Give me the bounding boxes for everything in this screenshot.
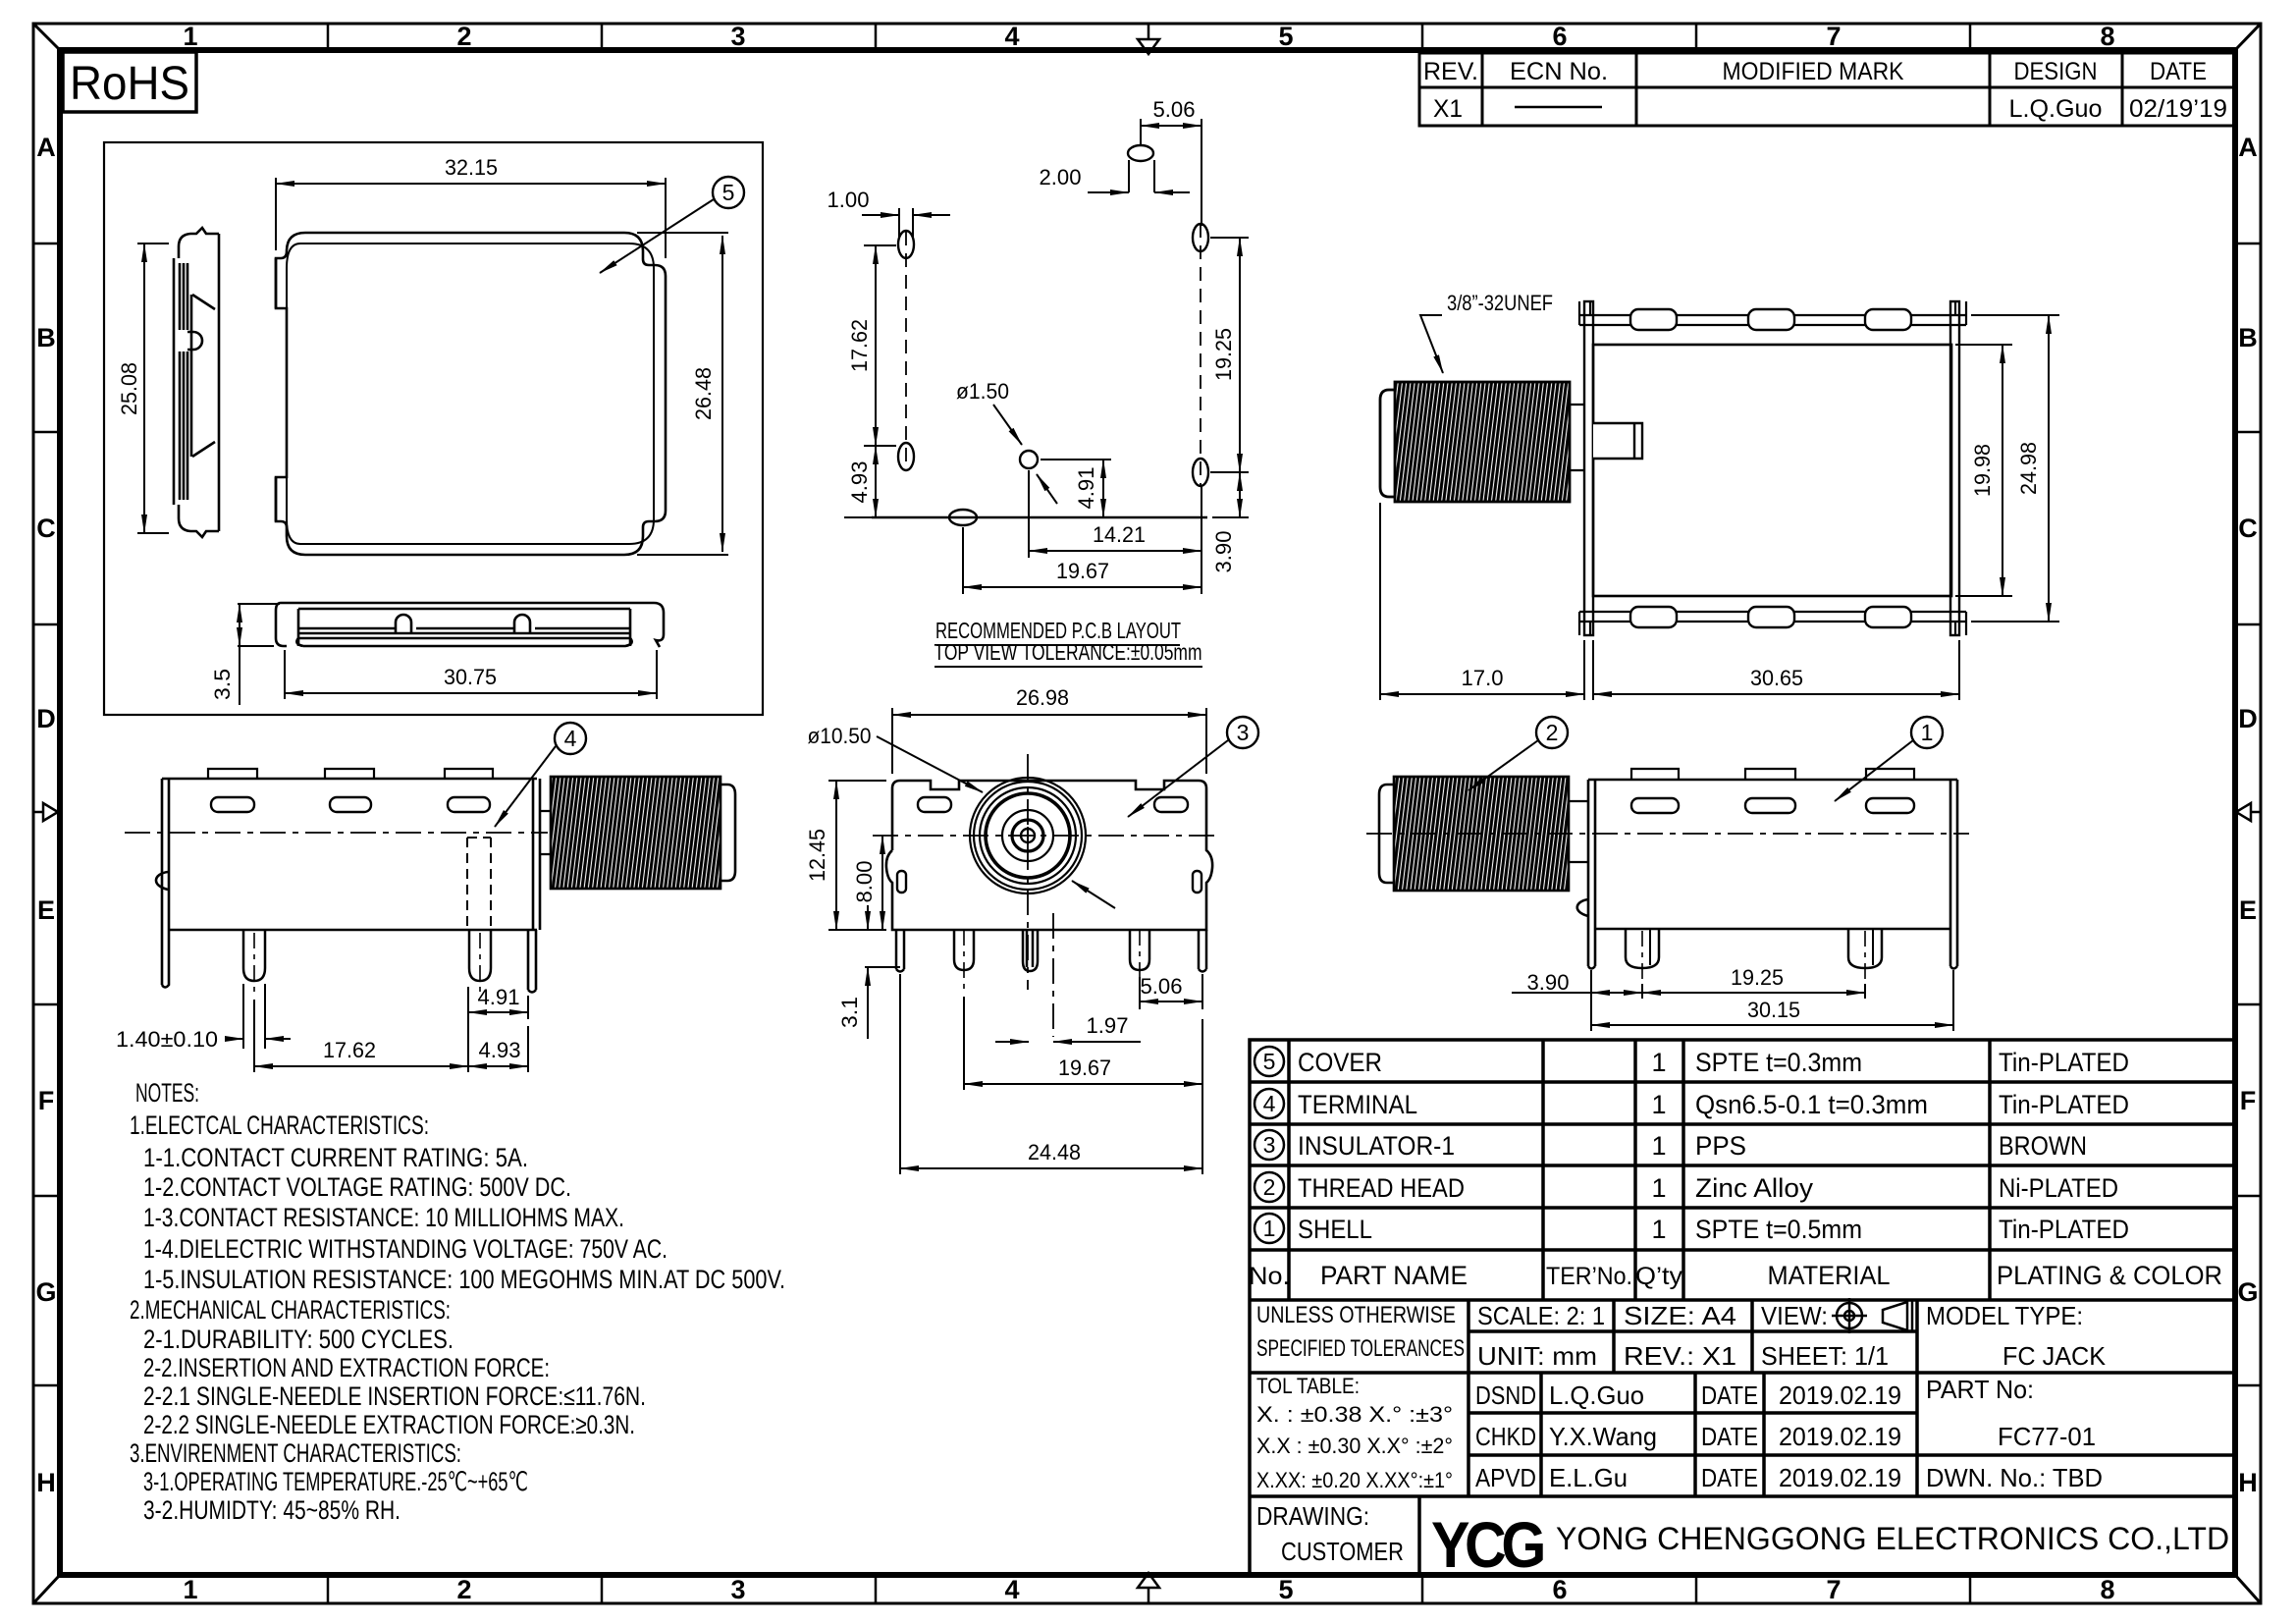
svg-text:SPTE t=0.5mm: SPTE t=0.5mm: [1695, 1215, 1862, 1244]
svg-text:REV.: X1: REV.: X1: [1624, 1341, 1736, 1371]
svg-text:7: 7: [1826, 1575, 1841, 1604]
svg-text:17.62: 17.62: [323, 1038, 376, 1062]
svg-text:DWN. No.: TBD: DWN. No.: TBD: [1926, 1463, 2103, 1492]
svg-text:PPS: PPS: [1695, 1131, 1746, 1161]
svg-text:14.21: 14.21: [1093, 522, 1146, 547]
svg-text:SHEET: 1/1: SHEET: 1/1: [1761, 1341, 1889, 1371]
svg-text:12.45: 12.45: [805, 829, 829, 882]
svg-text:3: 3: [730, 1575, 745, 1604]
svg-text:3-1.OPERATING TEMPERATURE.-25: 3-1.OPERATING TEMPERATURE.-25℃~+65℃: [143, 1467, 528, 1496]
svg-text:Ni-PLATED: Ni-PLATED: [1999, 1173, 2118, 1203]
svg-text:1: 1: [1651, 1090, 1666, 1119]
svg-text:DRAWING:: DRAWING:: [1256, 1501, 1369, 1531]
svg-text:APVD: APVD: [1475, 1463, 1536, 1492]
svg-text:1: 1: [183, 22, 197, 51]
svg-text:2: 2: [1263, 1174, 1276, 1200]
svg-text:A: A: [2238, 133, 2258, 162]
svg-text:4.93: 4.93: [847, 461, 872, 504]
svg-text:5: 5: [1278, 1575, 1293, 1604]
svg-text:24.48: 24.48: [1028, 1140, 1081, 1164]
svg-text:30.15: 30.15: [1747, 998, 1800, 1022]
svg-text:UNLESS OTHERWISE: UNLESS OTHERWISE: [1256, 1302, 1456, 1328]
svg-text:3.1: 3.1: [837, 997, 862, 1028]
svg-text:2: 2: [456, 22, 471, 51]
svg-text:Tin-PLATED: Tin-PLATED: [1999, 1048, 2129, 1077]
svg-text:SHELL: SHELL: [1298, 1215, 1372, 1244]
svg-text:C: C: [2238, 514, 2258, 543]
svg-text:DESIGN: DESIGN: [2014, 58, 2098, 85]
svg-text:No.: No.: [1249, 1263, 1290, 1290]
svg-text:DATE: DATE: [1701, 1422, 1758, 1451]
svg-text:2-2.INSERTION AND EXTRACTION: 2-2.INSERTION AND EXTRACTION FORCE:: [143, 1353, 550, 1382]
svg-text:D: D: [36, 704, 56, 733]
svg-text:VIEW:: VIEW:: [1761, 1301, 1828, 1330]
svg-text:3: 3: [1237, 720, 1250, 745]
svg-text:B: B: [2238, 323, 2258, 352]
svg-text:3.90: 3.90: [1211, 531, 1236, 573]
svg-text:Qsn6.5-0.1 t=0.3mm: Qsn6.5-0.1 t=0.3mm: [1695, 1090, 1928, 1119]
svg-text:19.25: 19.25: [1731, 965, 1784, 990]
svg-text:1: 1: [1263, 1216, 1276, 1241]
svg-text:TER’No.: TER’No.: [1546, 1263, 1632, 1290]
svg-text:3: 3: [1263, 1132, 1276, 1158]
svg-text:5: 5: [1278, 22, 1293, 51]
svg-text:3.90: 3.90: [1527, 970, 1570, 995]
svg-text:19.25: 19.25: [1211, 328, 1236, 381]
svg-text:SPECIFIED TOLERANCES: SPECIFIED TOLERANCES: [1256, 1335, 1465, 1362]
svg-text:ø10.50: ø10.50: [808, 724, 872, 748]
svg-text:SIZE: A4: SIZE: A4: [1624, 1301, 1736, 1330]
svg-text:4.91: 4.91: [1074, 467, 1098, 510]
svg-text:1: 1: [1651, 1173, 1666, 1203]
svg-text:BROWN: BROWN: [1999, 1131, 2087, 1161]
svg-text:24.98: 24.98: [2016, 442, 2041, 495]
svg-text:SCALE: 2: 1: SCALE: 2: 1: [1477, 1301, 1605, 1330]
svg-text:1.ELECTCAL CHARACTERISTICS:: 1.ELECTCAL CHARACTERISTICS:: [130, 1110, 429, 1140]
svg-text:COVER: COVER: [1298, 1048, 1382, 1077]
svg-text:SPTE t=0.3mm: SPTE t=0.3mm: [1695, 1048, 1862, 1077]
svg-text:A: A: [36, 133, 56, 162]
svg-text:30.65: 30.65: [1750, 666, 1803, 690]
svg-text:25.08: 25.08: [117, 362, 141, 415]
svg-text:L.Q.Guo: L.Q.Guo: [2009, 95, 2103, 123]
svg-text:X.XX: ±0.20 X.XX°:±1°: X.XX: ±0.20 X.XX°:±1°: [1256, 1468, 1453, 1492]
svg-text:PART No:: PART No:: [1926, 1375, 2034, 1404]
svg-text:2019.02.19: 2019.02.19: [1779, 1422, 1901, 1451]
svg-text:TOL TABLE:: TOL TABLE:: [1256, 1374, 1360, 1398]
svg-text:4: 4: [1004, 1575, 1019, 1604]
svg-text:1-3.CONTACT RESISTANCE: 10: 1-3.CONTACT RESISTANCE: 10 MILLIOHMS MAX…: [143, 1203, 624, 1232]
svg-text:1: 1: [1651, 1048, 1666, 1077]
svg-text:3-2.HUMIDTY: 45~85% RH.: 3-2.HUMIDTY: 45~85% RH.: [143, 1495, 400, 1525]
svg-text:NOTES:: NOTES:: [135, 1078, 199, 1108]
svg-text:2-2.1 SINGLE-NEEDLE INSERTIO: 2-2.1 SINGLE-NEEDLE INSERTION FORCE:≤11.…: [143, 1381, 646, 1411]
svg-text:L.Q.Guo: L.Q.Guo: [1549, 1380, 1644, 1410]
svg-text:E: E: [2239, 895, 2257, 925]
svg-text:2019.02.19: 2019.02.19: [1779, 1380, 1901, 1410]
svg-text:FC JACK: FC JACK: [2002, 1341, 2107, 1371]
svg-text:Zinc Alloy: Zinc Alloy: [1695, 1173, 1814, 1203]
svg-text:X.X : ±0.30 X.X° :±2°: X.X : ±0.30 X.X° :±2°: [1256, 1434, 1453, 1458]
svg-text:1: 1: [1651, 1131, 1666, 1161]
svg-text:3.ENVIRENMENT CHARACTERISTICS: 3.ENVIRENMENT CHARACTERISTICS:: [130, 1438, 461, 1468]
svg-text:1.40±0.10: 1.40±0.10: [116, 1027, 218, 1052]
svg-text:G: G: [2237, 1277, 2258, 1307]
svg-text:CUSTOMER: CUSTOMER: [1281, 1537, 1404, 1566]
svg-text:02/19’19: 02/19’19: [2129, 95, 2227, 123]
svg-text:CHKD: CHKD: [1475, 1422, 1536, 1451]
svg-text:H: H: [36, 1468, 56, 1497]
svg-text:YCG: YCG: [1431, 1508, 1543, 1581]
svg-text:H: H: [2238, 1468, 2258, 1497]
svg-text:17.0: 17.0: [1462, 666, 1504, 690]
svg-text:30.75: 30.75: [444, 665, 497, 689]
svg-text:Tin-PLATED: Tin-PLATED: [1999, 1215, 2129, 1244]
svg-text:REV.: REV.: [1423, 58, 1478, 85]
svg-text:2.MECHANICAL CHARACTERISTICS:: 2.MECHANICAL CHARACTERISTICS:: [130, 1295, 451, 1325]
svg-text:6: 6: [1552, 1575, 1567, 1604]
svg-text:Q’ty: Q’ty: [1635, 1263, 1683, 1290]
svg-text:3/8”-32UNEF: 3/8”-32UNEF: [1447, 291, 1553, 315]
svg-text:1-5.INSULATION RESISTANCE: 1: 1-5.INSULATION RESISTANCE: 100 MEGOHMS M…: [143, 1265, 785, 1294]
svg-text:3: 3: [730, 22, 745, 51]
svg-text:ø1.50: ø1.50: [956, 379, 1009, 404]
svg-text:1-2.CONTACT VOLTAGE RATING:: 1-2.CONTACT VOLTAGE RATING: 500V DC.: [143, 1172, 571, 1202]
svg-text:E: E: [37, 895, 55, 925]
svg-text:19.67: 19.67: [1056, 559, 1109, 583]
svg-text:4: 4: [564, 726, 577, 751]
svg-text:ECN No.: ECN No.: [1510, 58, 1608, 85]
svg-text:8: 8: [2100, 1575, 2114, 1604]
svg-text:26.48: 26.48: [691, 367, 716, 420]
svg-text:7: 7: [1826, 22, 1841, 51]
svg-text:19.67: 19.67: [1058, 1056, 1111, 1080]
svg-text:YONG CHENGGONG ELECTRONICS: YONG CHENGGONG ELECTRONICS CO.,LTD.: [1556, 1521, 2238, 1556]
svg-text:8.00: 8.00: [852, 861, 877, 903]
svg-text:2: 2: [456, 1575, 471, 1604]
svg-text:4.91: 4.91: [478, 985, 520, 1009]
svg-text:1.00: 1.00: [828, 188, 870, 212]
svg-text:X1: X1: [1433, 95, 1463, 123]
svg-text:THREAD HEAD: THREAD HEAD: [1298, 1173, 1465, 1203]
svg-text:TERMINAL: TERMINAL: [1298, 1090, 1417, 1119]
svg-text:1: 1: [1921, 720, 1934, 745]
svg-text:4.93: 4.93: [479, 1038, 521, 1062]
svg-text:1.97: 1.97: [1087, 1013, 1129, 1038]
svg-text:1: 1: [183, 1575, 197, 1604]
svg-text:F: F: [2240, 1086, 2257, 1115]
svg-text:MODEL TYPE:: MODEL TYPE:: [1926, 1301, 2083, 1330]
svg-text:MATERIAL: MATERIAL: [1768, 1261, 1891, 1290]
svg-text:G: G: [35, 1277, 56, 1307]
svg-text:D: D: [2238, 704, 2258, 733]
svg-text:5: 5: [1263, 1049, 1276, 1074]
svg-text:2019.02.19: 2019.02.19: [1779, 1463, 1901, 1492]
svg-text:F: F: [38, 1086, 55, 1115]
svg-text:DATE: DATE: [1701, 1380, 1758, 1410]
svg-text:2-1.DURABILITY: 500 CYCLES.: 2-1.DURABILITY: 500 CYCLES.: [143, 1325, 454, 1354]
svg-text:DATE: DATE: [1701, 1463, 1758, 1492]
svg-text:PLATING & COLOR: PLATING & COLOR: [1997, 1261, 2222, 1290]
svg-text:2: 2: [1546, 720, 1559, 745]
svg-text:MODIFIED MARK: MODIFIED MARK: [1723, 58, 1904, 85]
svg-text:1-4.DIELECTRIC WITHSTANDING: 1-4.DIELECTRIC WITHSTANDING VOLTAGE: 750…: [143, 1234, 667, 1264]
svg-text:PART NAME: PART NAME: [1320, 1261, 1468, 1290]
svg-text:5.06: 5.06: [1141, 974, 1183, 999]
svg-text:RoHS: RoHS: [70, 58, 189, 110]
svg-text:4: 4: [1004, 22, 1019, 51]
svg-text:5: 5: [722, 180, 735, 205]
svg-text:INSULATOR-1: INSULATOR-1: [1298, 1131, 1455, 1161]
svg-text:3.5: 3.5: [210, 669, 235, 700]
svg-text:Y.X.Wang: Y.X.Wang: [1549, 1422, 1657, 1451]
svg-text:26.98: 26.98: [1016, 685, 1069, 710]
svg-text:2.00: 2.00: [1040, 165, 1082, 189]
svg-text:6: 6: [1552, 22, 1567, 51]
svg-text:32.15: 32.15: [445, 155, 498, 180]
svg-text:8: 8: [2100, 22, 2114, 51]
svg-text:E.L.Gu: E.L.Gu: [1549, 1463, 1628, 1492]
svg-text:UNIT: mm: UNIT: mm: [1477, 1341, 1597, 1371]
svg-text:DSND: DSND: [1475, 1380, 1536, 1410]
svg-text:4: 4: [1263, 1091, 1276, 1116]
svg-text:B: B: [36, 323, 56, 352]
svg-text:2-2.2 SINGLE-NEEDLE EXTRACTI: 2-2.2 SINGLE-NEEDLE EXTRACTION FORCE:≥0.…: [143, 1410, 635, 1439]
svg-text:19.98: 19.98: [1970, 444, 1995, 497]
svg-text:Tin-PLATED: Tin-PLATED: [1999, 1090, 2129, 1119]
svg-text:5.06: 5.06: [1153, 97, 1196, 122]
svg-text:FC77-01: FC77-01: [1998, 1422, 2096, 1451]
svg-text:TOP VIEW TOLERANCE:±0.05mm: TOP VIEW TOLERANCE:±0.05mm: [934, 639, 1202, 665]
svg-text:1: 1: [1651, 1215, 1666, 1244]
svg-text:DATE: DATE: [2150, 58, 2207, 85]
svg-text:X. : ±0.38 X.° :±3°: X. : ±0.38 X.° :±3°: [1256, 1402, 1453, 1427]
svg-text:C: C: [36, 514, 56, 543]
svg-text:1-1.CONTACT CURRENT RATING:: 1-1.CONTACT CURRENT RATING: 5A.: [143, 1143, 528, 1172]
svg-text:17.62: 17.62: [847, 319, 872, 372]
